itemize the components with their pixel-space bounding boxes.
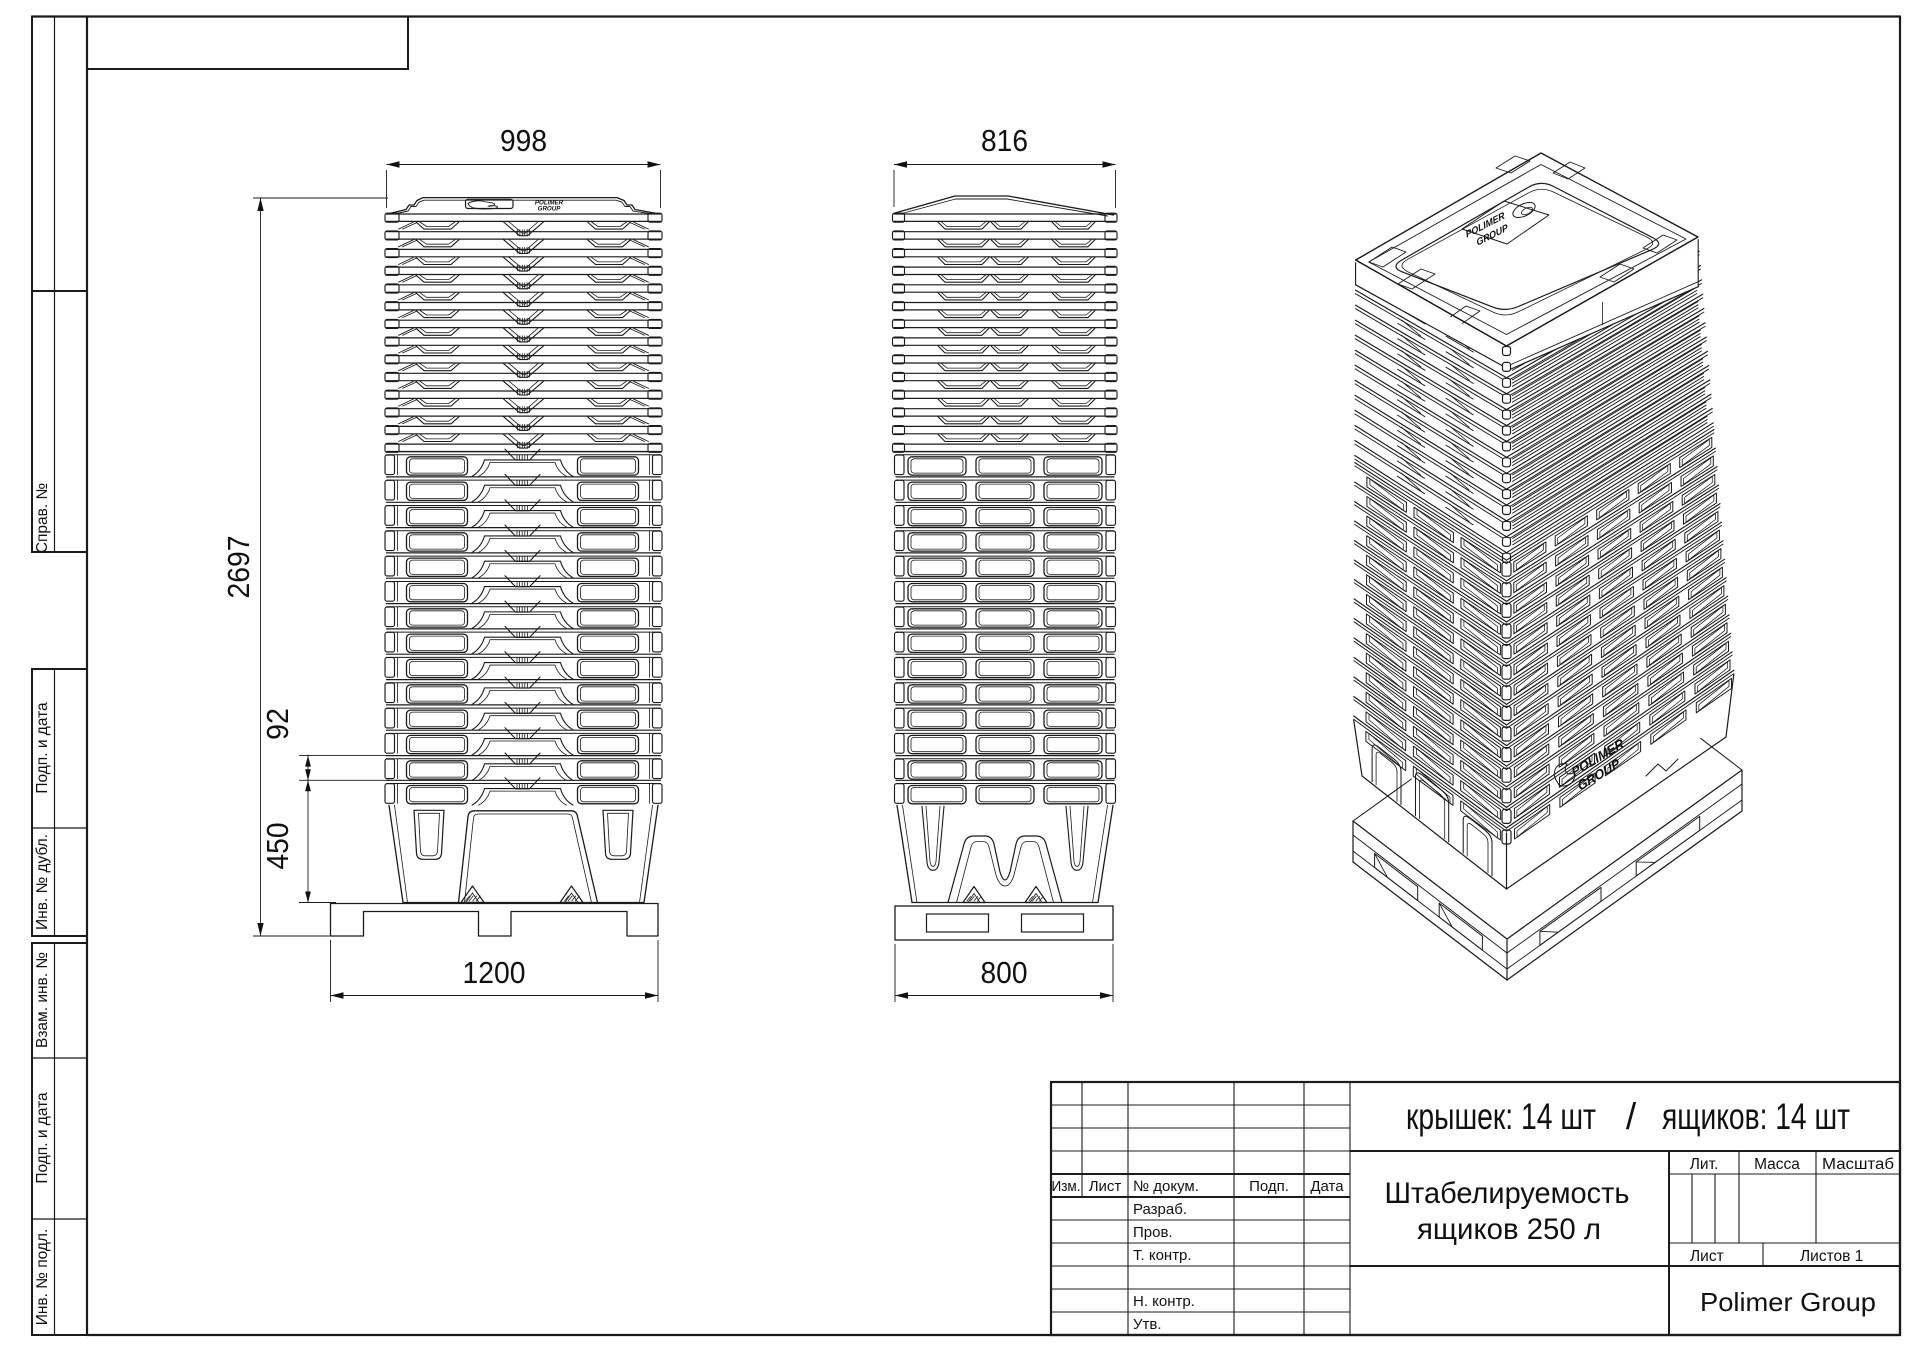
svg-text:Справ. №: Справ. № — [34, 482, 51, 553]
svg-text:450: 450 — [260, 823, 295, 870]
svg-text:Инв. № подл.: Инв. № подл. — [34, 1229, 51, 1326]
svg-text:Листов 1: Листов 1 — [1800, 1248, 1863, 1265]
svg-text:1200: 1200 — [463, 955, 526, 990]
svg-text:Пров.: Пров. — [1133, 1224, 1173, 1241]
svg-text:Лит.: Лит. — [1690, 1156, 1719, 1173]
svg-text:Дата: Дата — [1310, 1178, 1344, 1195]
svg-text:ящиков 250 л: ящиков 250 л — [1417, 1213, 1601, 1246]
svg-text:Лист: Лист — [1690, 1248, 1724, 1265]
svg-text:Подп. и дата: Подп. и дата — [34, 702, 51, 794]
svg-text:GROUP: GROUP — [538, 205, 562, 212]
svg-text:Н. контр.: Н. контр. — [1133, 1293, 1195, 1310]
svg-text:Разраб.: Разраб. — [1133, 1201, 1187, 1218]
svg-text:Подп. и дата: Подп. и дата — [34, 1092, 51, 1184]
svg-text:Утв.: Утв. — [1133, 1316, 1162, 1333]
svg-text:Подп.: Подп. — [1249, 1178, 1289, 1195]
svg-text:Изм.: Изм. — [1052, 1178, 1081, 1195]
svg-text:998: 998 — [500, 123, 547, 158]
svg-text:ящиков: 14 шт: ящиков: 14 шт — [1662, 1096, 1850, 1137]
svg-text:800: 800 — [981, 955, 1028, 990]
svg-text:92: 92 — [260, 708, 295, 740]
svg-text:2697: 2697 — [221, 536, 256, 599]
svg-text:Масса: Масса — [1754, 1156, 1800, 1173]
svg-text:№ докум.: № докум. — [1133, 1178, 1199, 1195]
svg-text:Масштаб: Масштаб — [1822, 1156, 1894, 1173]
svg-text:/: / — [1626, 1096, 1637, 1137]
svg-text:816: 816 — [981, 123, 1028, 158]
svg-text:Штабелируемость: Штабелируемость — [1385, 1177, 1630, 1210]
svg-text:Инв. № дубл.: Инв. № дубл. — [34, 834, 51, 930]
svg-text:Т. контр.: Т. контр. — [1133, 1247, 1192, 1264]
svg-text:крышек: 14 шт: крышек: 14 шт — [1406, 1096, 1596, 1137]
svg-text:Лист: Лист — [1089, 1178, 1122, 1195]
svg-text:Polimer Group: Polimer Group — [1700, 1287, 1876, 1317]
svg-text:Взам. инв. №: Взам. инв. № — [34, 952, 51, 1048]
